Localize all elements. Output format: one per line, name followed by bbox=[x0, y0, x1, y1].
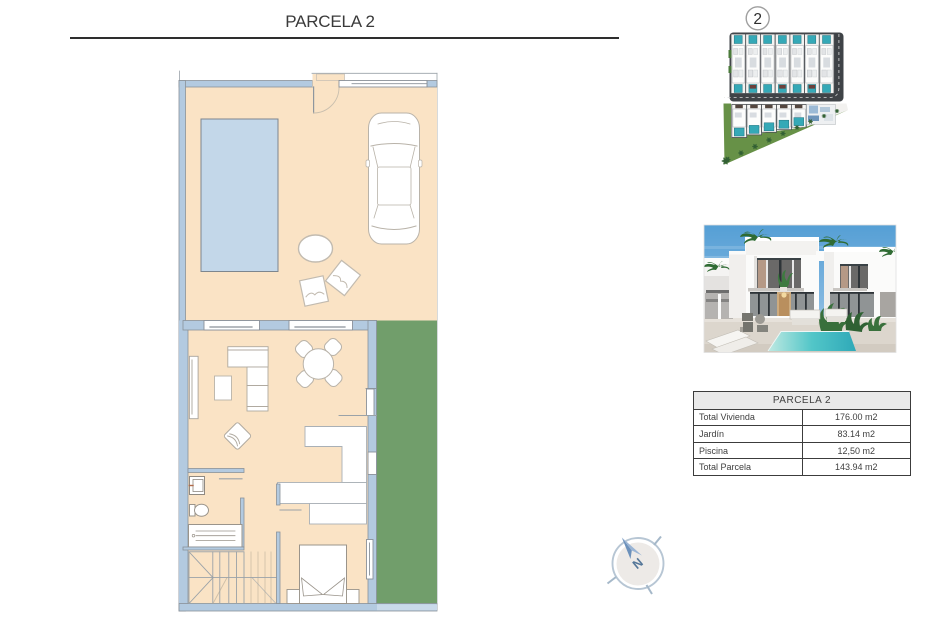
svg-text:2: 2 bbox=[753, 11, 762, 28]
